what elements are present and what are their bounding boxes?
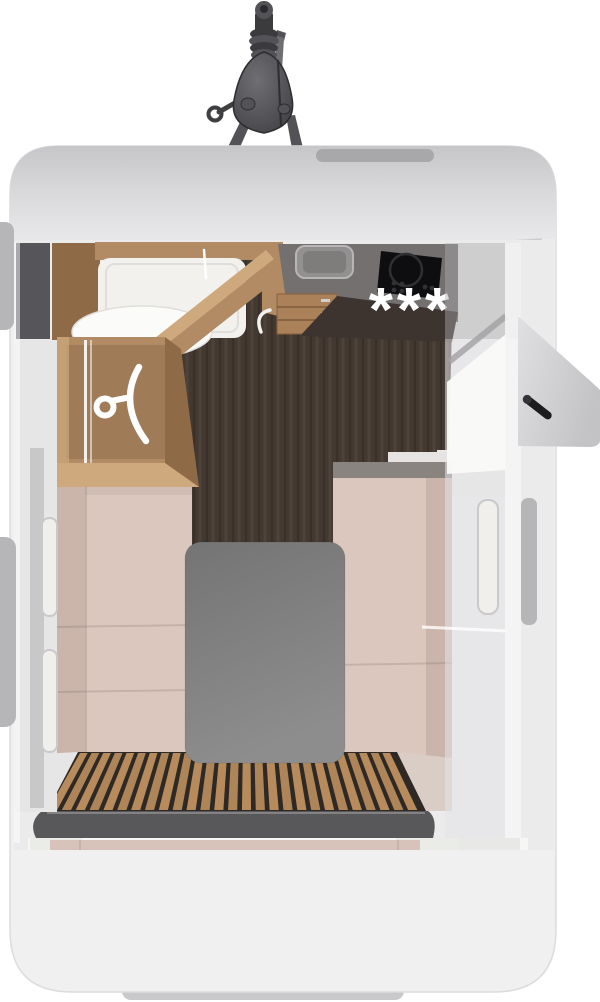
side-tab-right — [521, 498, 537, 625]
lounge-right-bench — [333, 452, 452, 768]
entry-door-flap — [518, 316, 600, 447]
fridge-star-rating: *** — [369, 276, 453, 345]
caravan-render: *** — [0, 0, 600, 1002]
side-tab-left-upper — [0, 222, 14, 330]
hitch-cover — [233, 52, 292, 133]
rear-deck — [33, 752, 452, 838]
wardrobe — [57, 337, 199, 487]
rear-step — [33, 811, 435, 838]
kitchen: *** — [277, 244, 458, 345]
front-cabinet — [16, 243, 50, 339]
front-roof-cap — [10, 146, 556, 249]
left-window-1 — [42, 518, 57, 616]
awning-rail-left — [0, 537, 16, 727]
right-window — [478, 500, 498, 614]
hitch-assembly — [209, 1, 305, 154]
dining-table — [185, 542, 345, 763]
lounge-left-bench — [55, 487, 192, 768]
left-window-2 — [42, 650, 57, 752]
roof-vent — [316, 149, 434, 162]
caravan-top-view-scene: *** — [0, 0, 600, 1002]
